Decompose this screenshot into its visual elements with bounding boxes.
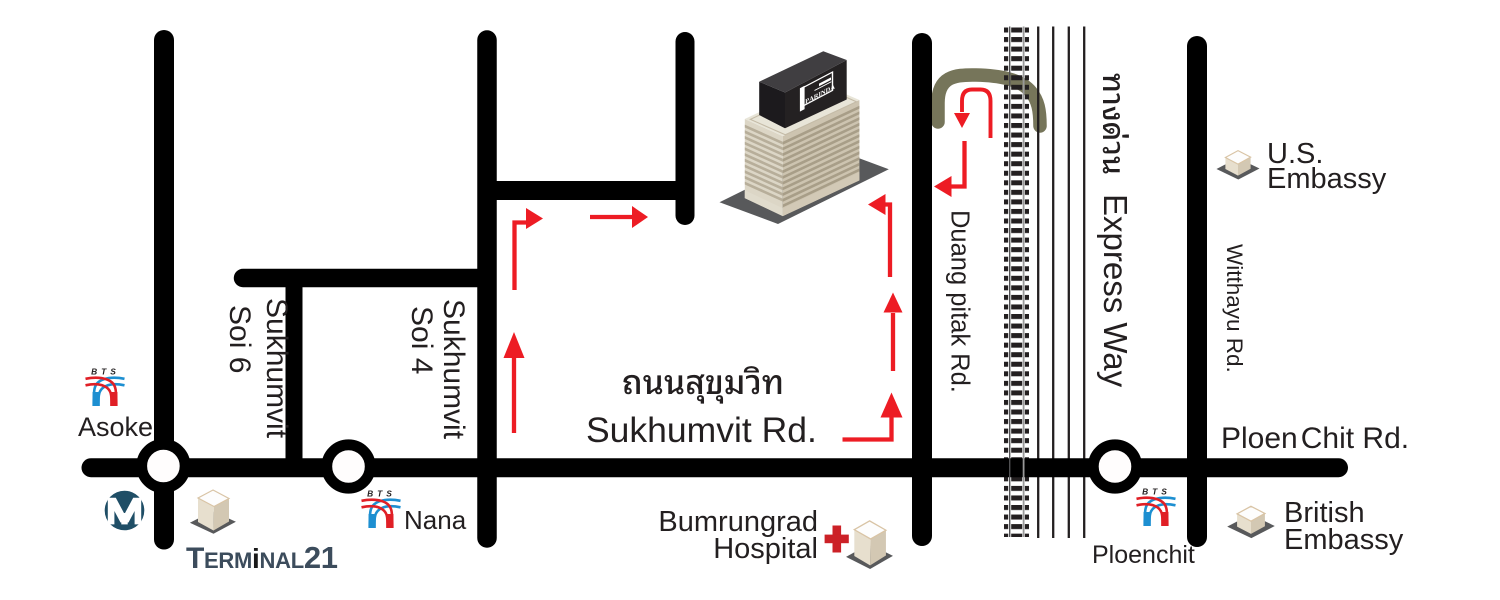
- svg-text:Duang pitak Rd.: Duang pitak Rd.: [946, 210, 974, 393]
- svg-text:Sukhumvit: Sukhumvit: [260, 298, 293, 439]
- svg-text:Hospital: Hospital: [713, 533, 818, 565]
- svg-text:Soi 4: Soi 4: [405, 306, 438, 374]
- svg-text:Soi 6: Soi 6: [223, 305, 256, 373]
- svg-text:Witthayu Rd.: Witthayu Rd.: [1222, 244, 1247, 373]
- svg-text:Ploenchit: Ploenchit: [1092, 541, 1195, 569]
- svg-text:PloenChit Rd.: PloenChit Rd.: [1221, 422, 1409, 455]
- svg-text:Sukhumvit Rd.: Sukhumvit Rd.: [586, 410, 817, 450]
- svg-text:Sukhumvit: Sukhumvit: [437, 299, 470, 440]
- svg-text:Express Way: Express Way: [1097, 194, 1134, 388]
- svg-text:Nana: Nana: [404, 505, 467, 535]
- svg-text:Embassy: Embassy: [1267, 163, 1387, 195]
- svg-text:Embassy: Embassy: [1284, 524, 1404, 556]
- svg-text:Asoke: Asoke: [78, 412, 153, 442]
